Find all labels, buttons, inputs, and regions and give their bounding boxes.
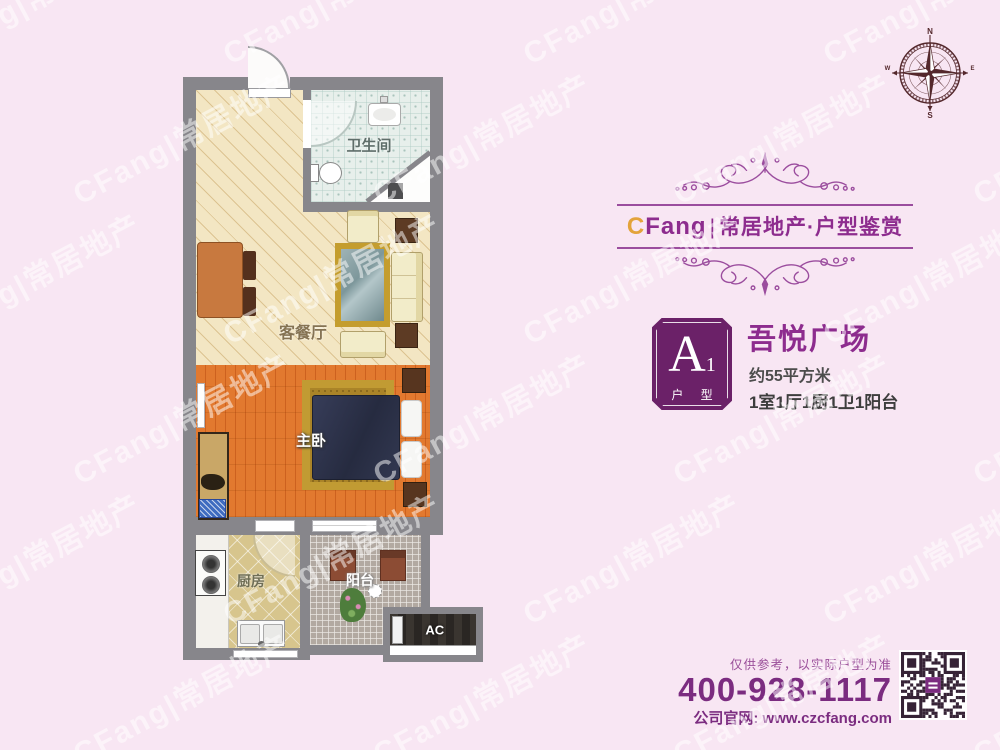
- compass-north-label: N: [927, 27, 933, 36]
- flourish-ornament-bottom: [635, 250, 895, 298]
- watermark-text: CFang|常居地产: [514, 0, 748, 73]
- brand-header: CFang|常居地产·户型鉴赏: [617, 150, 913, 303]
- brand-separator: |: [707, 216, 719, 239]
- toilet-bowl: [319, 162, 342, 184]
- unit-layout: 1室1厅1厨1卫1阳台: [749, 388, 898, 413]
- compass-rose: N S E W: [884, 27, 976, 119]
- watermark-text: CFang|常居地产: [0, 0, 148, 73]
- balcony-chair: [380, 550, 406, 581]
- entry-door-leaf: [248, 88, 291, 98]
- kitchen-window: [233, 650, 298, 658]
- side-table: [395, 218, 418, 243]
- project-name: 吾悦广场: [747, 316, 871, 358]
- sink-faucet: [380, 96, 388, 103]
- website-text: 公司官网: www.czcfang.com: [678, 707, 892, 728]
- side-table: [395, 323, 418, 348]
- ac-side-window: [392, 616, 403, 644]
- bathroom-sink: [368, 103, 401, 126]
- stove: [195, 550, 226, 596]
- brand-tagline: 常居地产·户型鉴赏: [719, 216, 903, 239]
- badge-number: 1: [706, 354, 716, 376]
- wardrobe-item: [201, 474, 225, 490]
- watermark-layer: CFang|常居地产CFang|常居地产CFang|常居地产CFang|常居地产…: [0, 0, 1000, 750]
- pillow: [401, 441, 422, 478]
- watermark-text: CFang|常居地产: [814, 481, 1000, 633]
- header-rule-top: [617, 204, 913, 206]
- flourish-ornament-top: [635, 150, 895, 198]
- poster: AC 客餐厅 主卧 卫生间 厨房 阳台: [0, 0, 1000, 750]
- watermark-text: CFang|常居地产: [514, 481, 748, 633]
- living-rug: [335, 243, 390, 327]
- unit-area: 约55平方米: [749, 362, 831, 386]
- dining-chair: [243, 287, 256, 316]
- footer-contact: 仅供参考，以实际户型为准 400-928-1117 公司官网: www.czcf…: [678, 654, 892, 728]
- balcony-label: 阳台: [346, 570, 374, 590]
- header-rule-bottom: [617, 247, 913, 249]
- brand-logo-row: CFang|常居地产·户型鉴赏: [617, 207, 913, 246]
- wall: [300, 535, 310, 648]
- compass-west-label: W: [885, 66, 891, 72]
- bedroom-label: 主卧: [296, 430, 326, 451]
- balcony-window: [312, 520, 377, 532]
- ac-sill: [390, 645, 476, 655]
- crib: [199, 499, 226, 518]
- qr-code: [899, 650, 967, 720]
- wall: [303, 90, 311, 100]
- ac-label: AC: [425, 622, 444, 637]
- watermark-text: CFang|常居地产: [0, 201, 148, 353]
- nightstand: [402, 368, 426, 393]
- unit-type-badge: A1 户 型: [652, 318, 732, 410]
- kitchen-sink: [237, 620, 285, 647]
- armchair: [347, 210, 379, 243]
- phone-number: 400-928-1117: [678, 673, 892, 707]
- badge-letter: A: [668, 326, 706, 383]
- kitchen-label: 厨房: [237, 571, 265, 591]
- bathroom-door-opening: [303, 100, 311, 148]
- brand-logo-fang: Fang: [645, 213, 706, 240]
- dining-chair: [243, 251, 256, 280]
- brand-logo-c: C: [627, 213, 645, 240]
- watermark-text: CFang|常居地产: [964, 621, 1000, 750]
- floor-plan: AC 客餐厅 主卧 卫生间 厨房 阳台: [183, 50, 495, 670]
- bedroom-side-window: [197, 383, 205, 428]
- wall: [290, 77, 443, 90]
- shower-unit: [388, 183, 403, 199]
- watermark-text: CFang|常居地产: [0, 481, 148, 633]
- ac-platform: AC: [383, 607, 483, 662]
- kitchen-door-opening: [255, 520, 295, 532]
- compass-south-label: S: [927, 111, 933, 119]
- entry-door-swing: [248, 46, 290, 88]
- toilet-tank: [310, 164, 319, 182]
- wall: [430, 77, 443, 535]
- pillow: [401, 400, 422, 437]
- compass-east-label: E: [970, 66, 974, 72]
- loveseat: [340, 331, 386, 358]
- sofa: [391, 252, 423, 322]
- watermark-text: CFang|常居地产: [964, 341, 1000, 493]
- nightstand: [403, 482, 427, 507]
- potted-plant: [340, 588, 366, 622]
- living-room-label: 客餐厅: [279, 319, 327, 343]
- bathroom-label: 卫生间: [346, 135, 391, 156]
- dining-table: [197, 242, 243, 318]
